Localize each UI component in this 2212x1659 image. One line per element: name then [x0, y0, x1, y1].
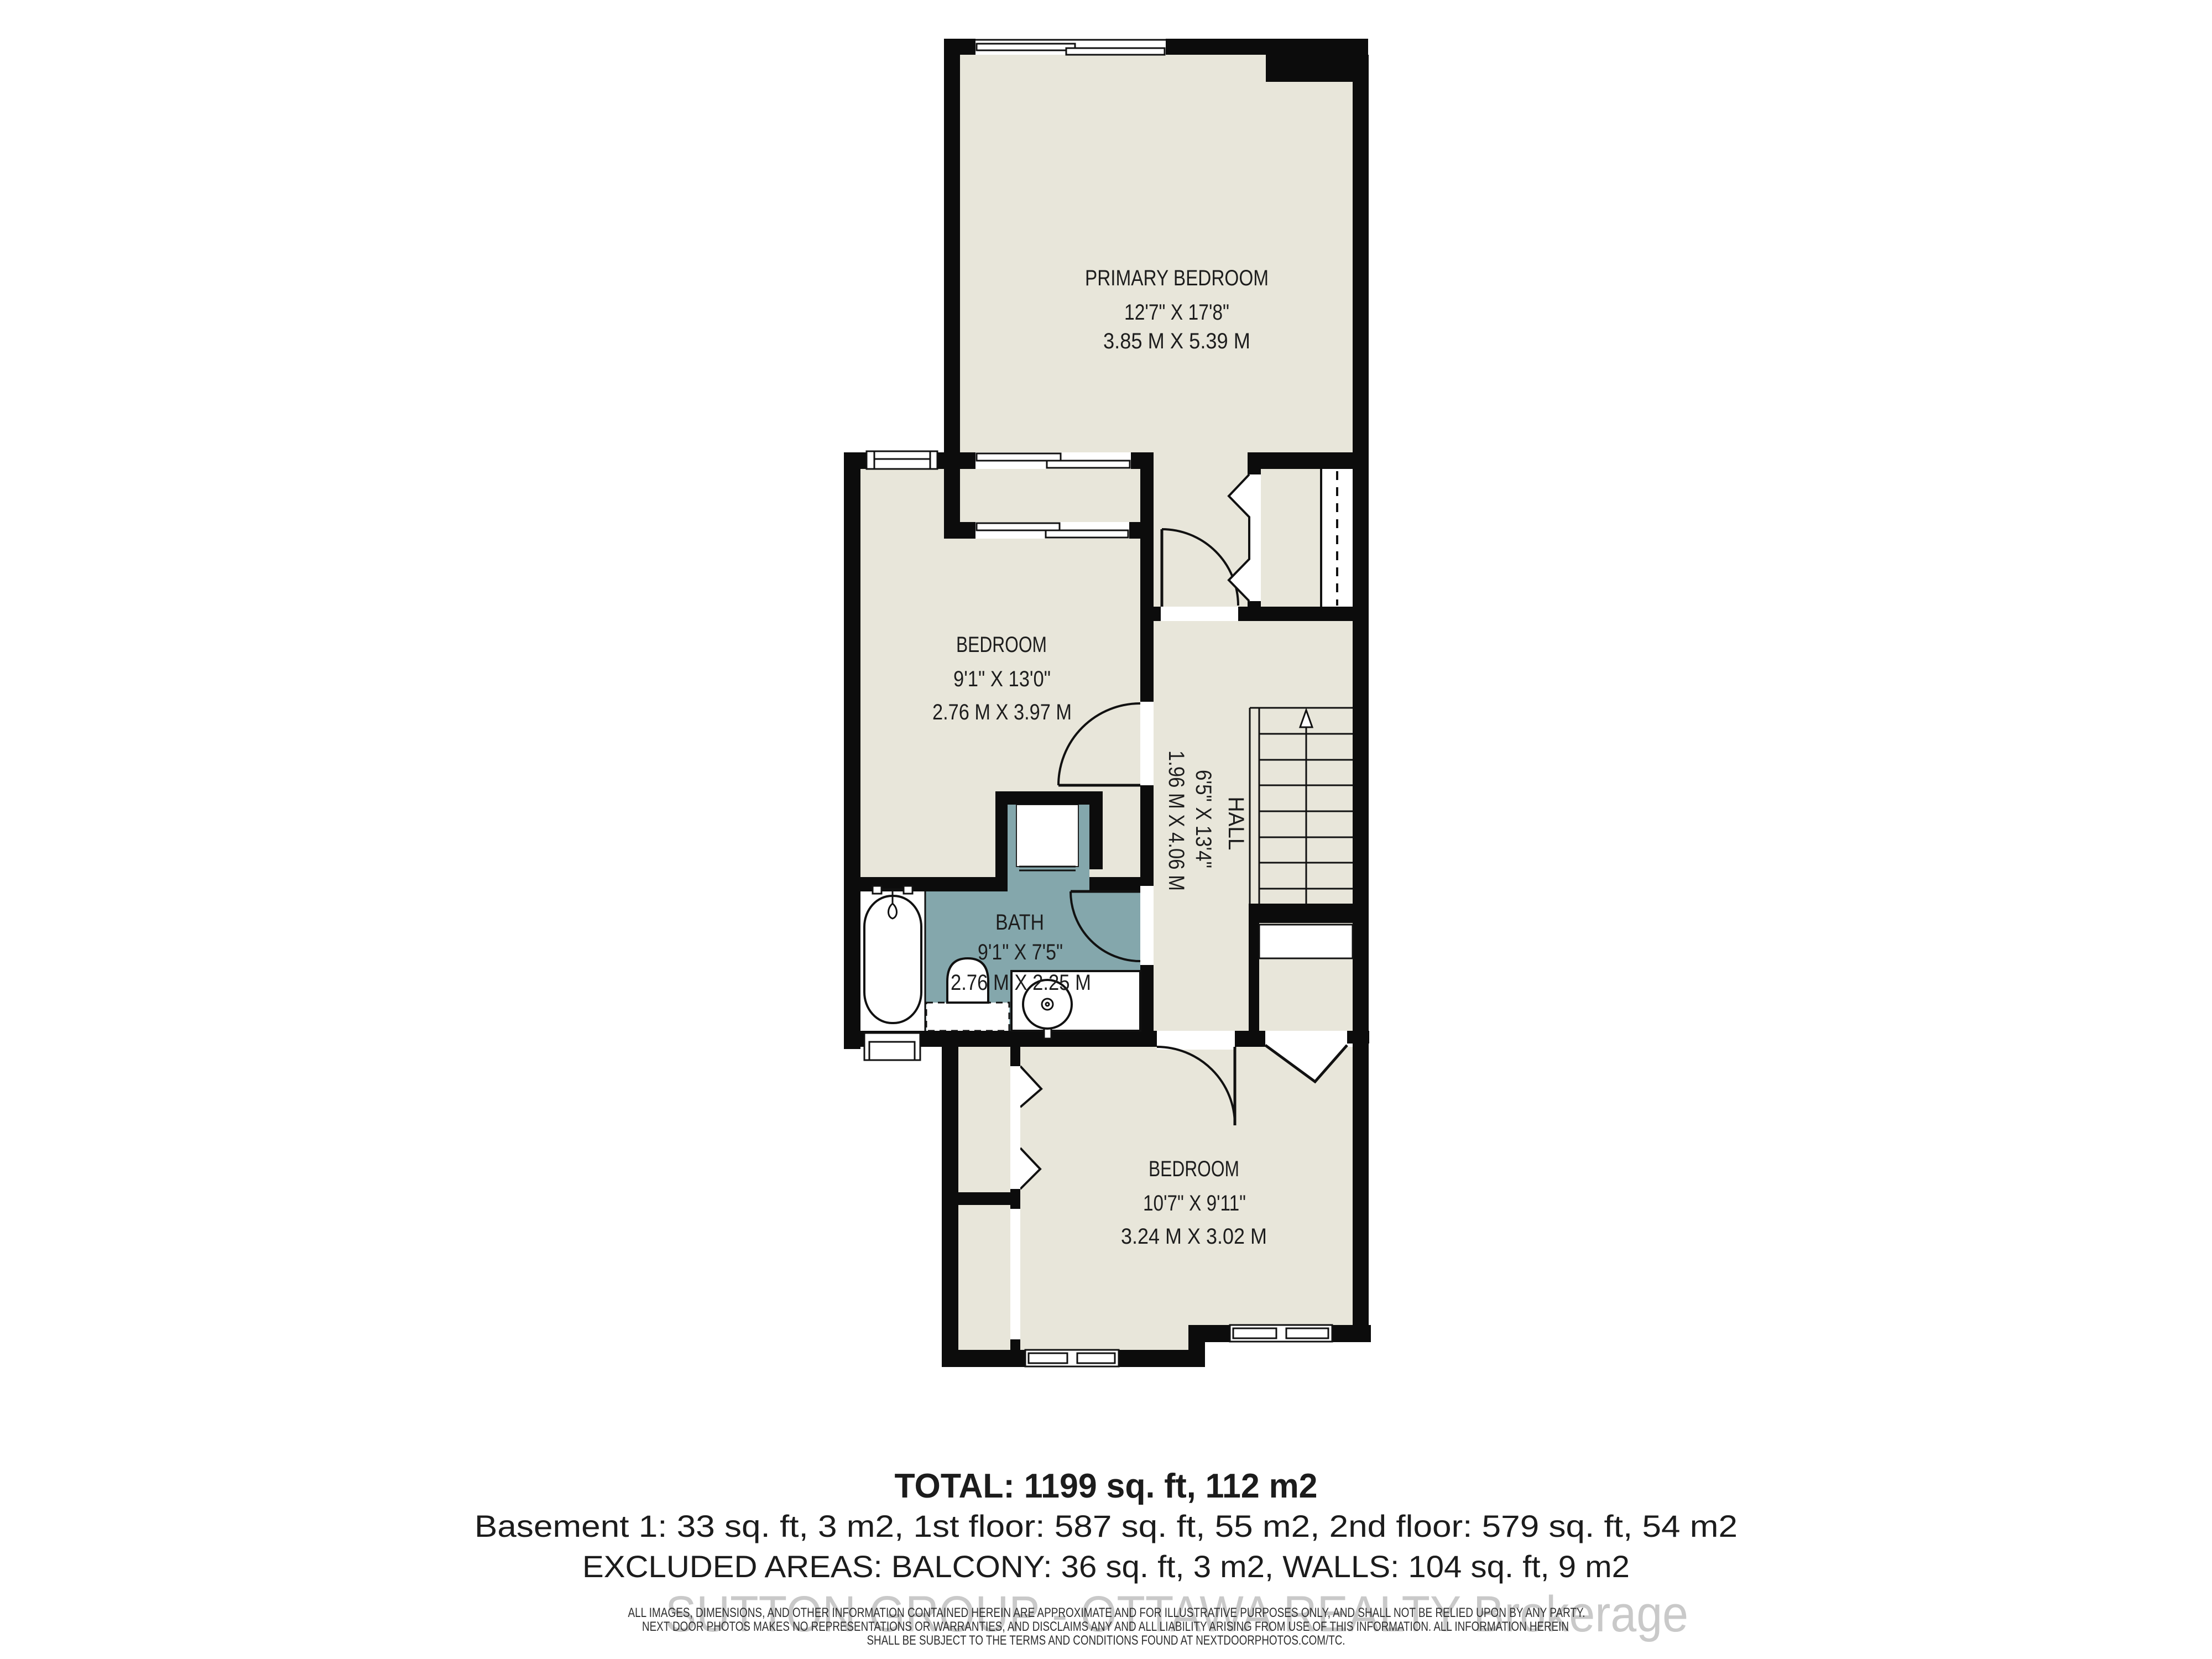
svg-text:6'5" X 13'4": 6'5" X 13'4" — [1191, 770, 1215, 868]
svg-text:BEDROOM: BEDROOM — [1149, 1157, 1239, 1181]
svg-text:BATH: BATH — [995, 910, 1044, 935]
svg-text:Basement 1: 33 sq. ft, 3 m2, 1: Basement 1: 33 sq. ft, 3 m2, 1st floor: … — [474, 1509, 1738, 1543]
svg-text:HALL: HALL — [1224, 797, 1248, 851]
svg-text:PRIMARY BEDROOM: PRIMARY BEDROOM — [1085, 266, 1269, 290]
svg-text:BEDROOM: BEDROOM — [956, 633, 1047, 657]
svg-text:EXCLUDED AREAS: BALCONY: 36 sq: EXCLUDED AREAS: BALCONY: 36 sq. ft, 3 m2… — [582, 1549, 1630, 1584]
svg-text:3.24 M X 3.02 M: 3.24 M X 3.02 M — [1121, 1224, 1267, 1249]
svg-text:SHALL BE SUBJECT TO THE TERMS: SHALL BE SUBJECT TO THE TERMS AND CONDIT… — [867, 1633, 1345, 1648]
svg-text:3.85 M X 5.39 M: 3.85 M X 5.39 M — [1103, 329, 1250, 353]
svg-text:ALL IMAGES, DIMENSIONS, AND OT: ALL IMAGES, DIMENSIONS, AND OTHER INFORM… — [628, 1605, 1585, 1620]
svg-text:NEXT DOOR PHOTOS MAKES NO REPR: NEXT DOOR PHOTOS MAKES NO REPRESENTATION… — [642, 1619, 1569, 1634]
svg-text:9'1" X 13'0": 9'1" X 13'0" — [953, 667, 1051, 691]
svg-text:9'1" X 7'5": 9'1" X 7'5" — [978, 940, 1063, 964]
svg-text:TOTAL: 1199 sq. ft, 112 m2: TOTAL: 1199 sq. ft, 112 m2 — [895, 1467, 1318, 1505]
svg-text:2.76 M X 2.25 M: 2.76 M X 2.25 M — [951, 971, 1091, 995]
svg-text:1.96 M X 4.06 M: 1.96 M X 4.06 M — [1164, 750, 1188, 891]
svg-text:12'7" X 17'8": 12'7" X 17'8" — [1124, 300, 1229, 325]
svg-text:2.76 M X 3.97 M: 2.76 M X 3.97 M — [932, 700, 1072, 724]
svg-text:10'7" X 9'11": 10'7" X 9'11" — [1143, 1191, 1246, 1215]
